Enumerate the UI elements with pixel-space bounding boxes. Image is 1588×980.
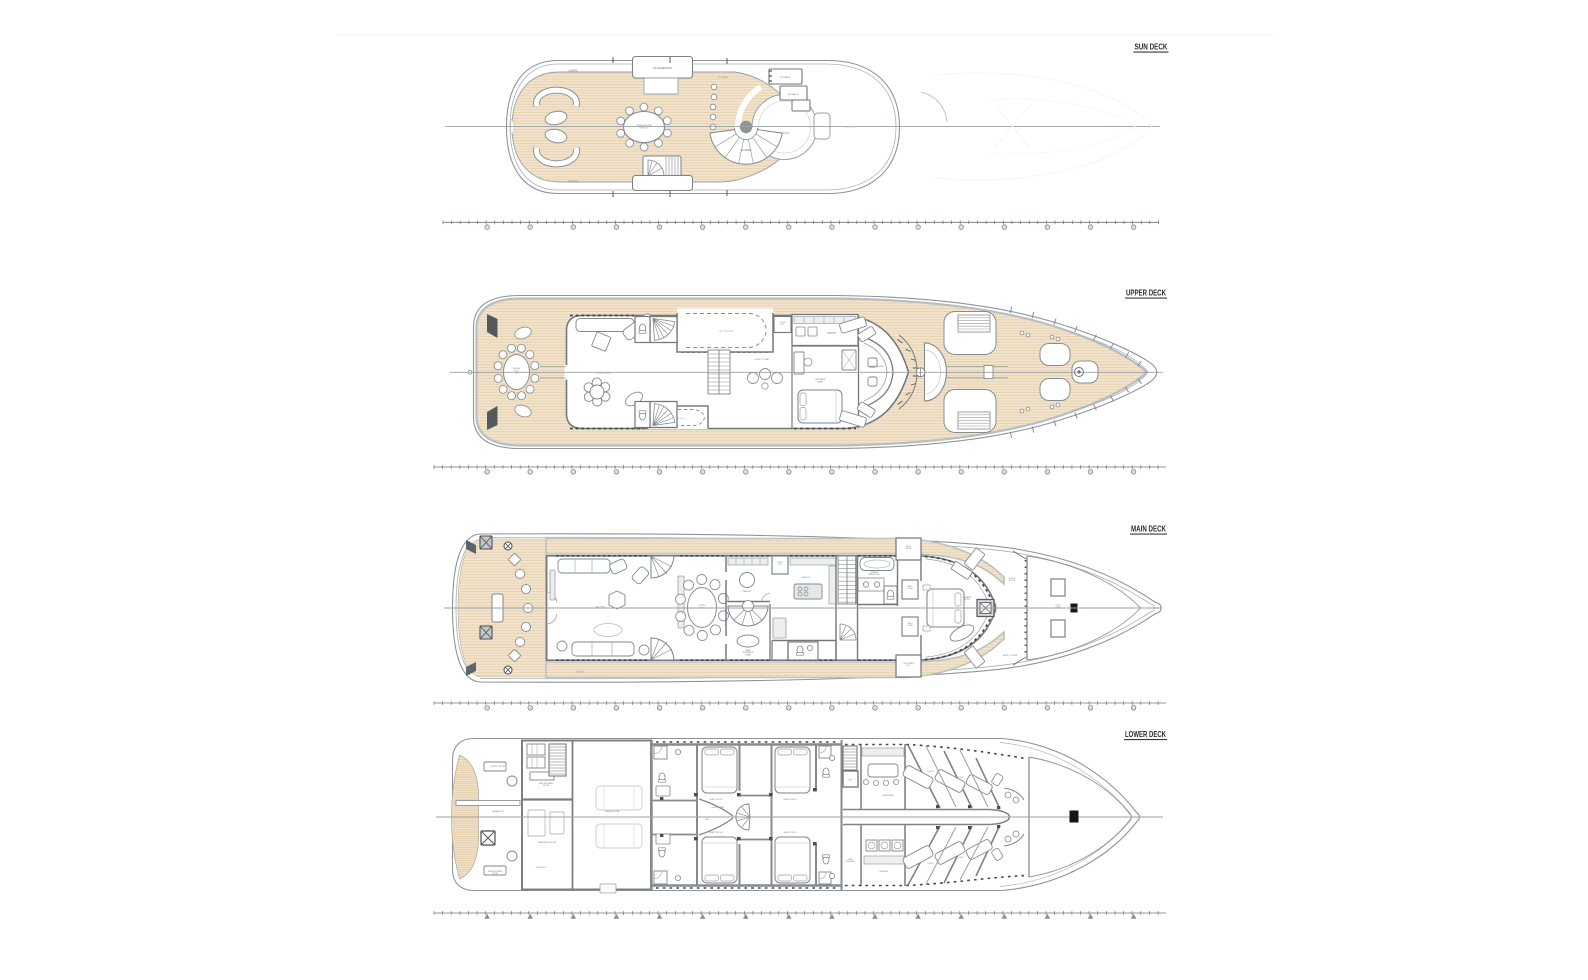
svg-text:DECK 75: DECK 75 (640, 128, 650, 130)
svg-text:GALLEY: GALLEY (802, 576, 811, 579)
svg-text:ENGINE ROOM: ENGINE ROOM (605, 811, 620, 813)
svg-text:GUEST LOBBY: GUEST LOBBY (754, 359, 770, 361)
svg-text:LOBBY: LOBBY (745, 654, 752, 656)
svg-text:LAUNDRY: LAUNDRY (879, 870, 889, 873)
svg-text:T/A GENERATOR: T/A GENERATOR (652, 67, 671, 70)
svg-text:MAIN DECK: MAIN DECK (1131, 525, 1166, 534)
svg-text:GUEST SUITE 3: GUEST SUITE 3 (709, 832, 722, 834)
svg-text:ROOM: ROOM (492, 873, 498, 875)
svg-text:SUNPAD: SUNPAD (568, 70, 578, 73)
svg-text:PANTRY: PANTRY (827, 332, 837, 335)
svg-text:GENERATOR ROOM: GENERATOR ROOM (538, 841, 557, 844)
svg-text:BATHROOM: BATHROOM (869, 573, 880, 576)
svg-text:JET TENDER: JET TENDER (719, 331, 733, 333)
svg-text:RADAR: RADAR (846, 126, 855, 129)
svg-text:STOWAGE: STOWAGE (788, 93, 799, 96)
svg-text:2 CREW: 2 CREW (927, 863, 934, 865)
svg-text:STORE: STORE (1009, 580, 1016, 582)
svg-text:CABIN: CABIN (817, 380, 824, 383)
svg-text:PASSERELLE: PASSERELLE (536, 866, 548, 869)
svg-text:STOWAGE: STOWAGE (780, 76, 791, 79)
svg-text:STORE: STORE (905, 548, 912, 550)
svg-text:SQUARE: SQUARE (576, 671, 585, 674)
svg-text:ROOM: ROOM (543, 785, 549, 787)
svg-text:GUEST SUITE 1: GUEST SUITE 1 (709, 799, 722, 801)
svg-text:GUEST SUITE 4: GUEST SUITE 4 (783, 832, 796, 834)
svg-text:SUN DECK: SUN DECK (1135, 43, 1168, 52)
svg-text:2 CREW: 2 CREW (957, 777, 964, 779)
svg-text:PAINT LOCKER: PAINT LOCKER (1003, 654, 1018, 657)
svg-text:2 CREW: 2 CREW (957, 857, 964, 859)
svg-text:SKI/TOY ROOM: SKI/TOY ROOM (491, 766, 505, 768)
svg-text:GUEST SUITE 2: GUEST SUITE 2 (783, 799, 796, 801)
svg-text:SALOON: SALOON (595, 606, 605, 609)
svg-text:LOWER DECK: LOWER DECK (1125, 730, 1166, 739)
svg-text:SUITE: SUITE (964, 599, 970, 601)
svg-text:LAZARETTE: LAZARETTE (492, 810, 504, 813)
svg-text:CLOSET: CLOSET (907, 588, 913, 590)
svg-text:PANTRY: PANTRY (743, 590, 752, 593)
svg-text:ENGINEER: ENGINEER (846, 861, 856, 863)
svg-text:CLOSET: CLOSET (907, 625, 913, 627)
svg-text:SUNPAD: SUNPAD (568, 181, 578, 184)
svg-text:STOWAGE: STOWAGE (718, 76, 729, 79)
svg-text:UPPER DECK: UPPER DECK (1126, 289, 1166, 298)
svg-text:SUNBED: SUNBED (741, 148, 752, 152)
svg-text:2 CREW: 2 CREW (927, 771, 934, 773)
svg-text:WHEELHOUSE: WHEELHOUSE (869, 366, 884, 368)
svg-text:CREW MESS: CREW MESS (882, 795, 894, 797)
